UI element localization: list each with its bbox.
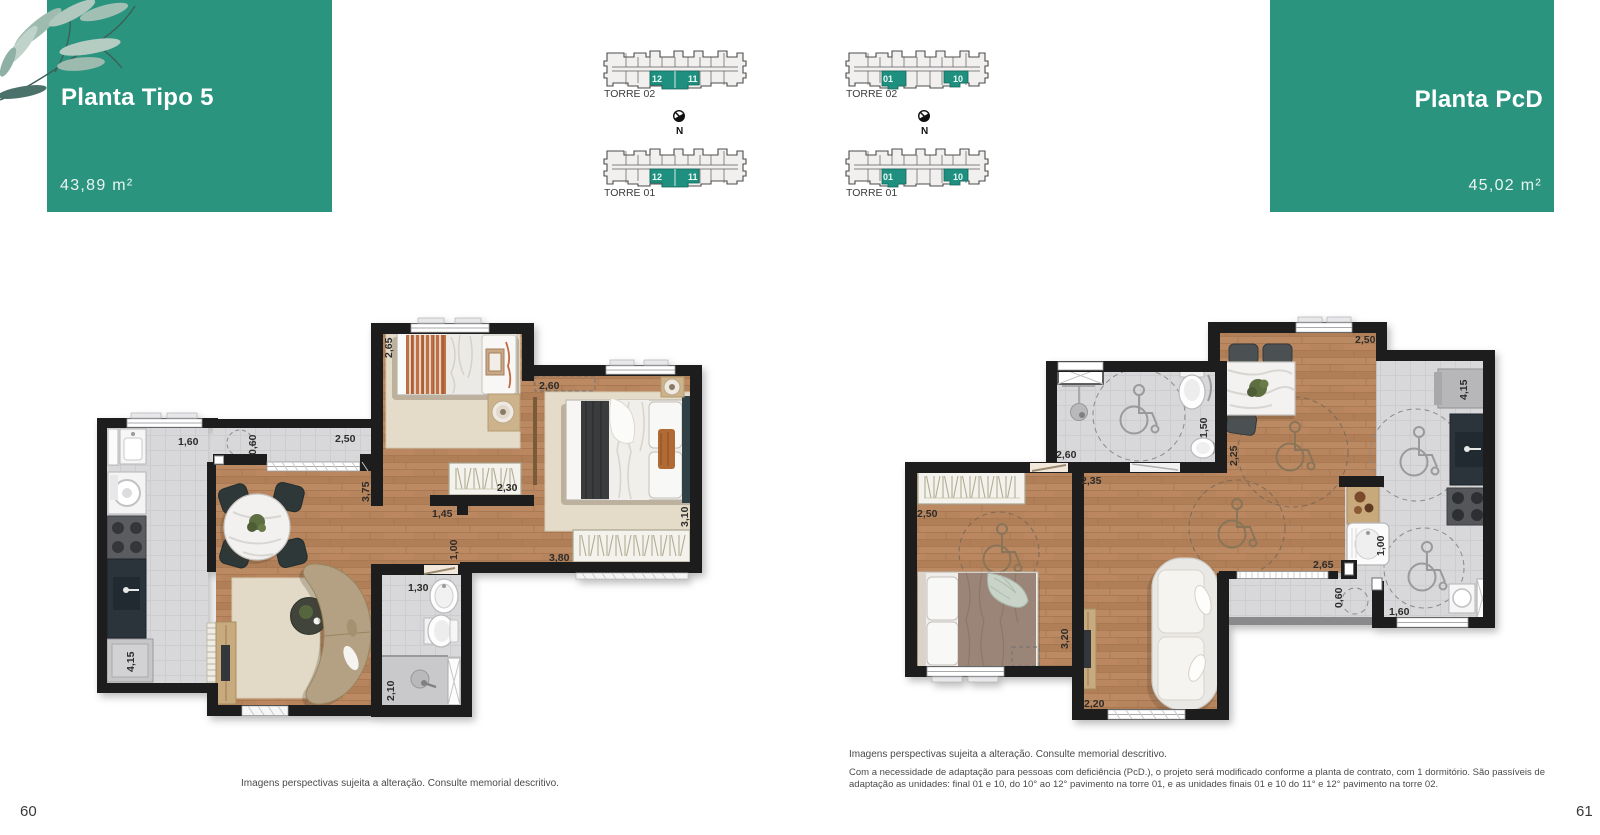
- svg-text:TORRE 01: TORRE 01: [846, 187, 897, 199]
- svg-text:2,50: 2,50: [335, 433, 356, 445]
- svg-text:2,65: 2,65: [383, 337, 395, 358]
- svg-text:2,65: 2,65: [1313, 559, 1334, 571]
- svg-text:4,15: 4,15: [1458, 379, 1470, 400]
- svg-text:0,60: 0,60: [247, 434, 259, 455]
- svg-text:TORRE 01: TORRE 01: [604, 187, 655, 199]
- svg-text:TORRE 02: TORRE 02: [846, 88, 897, 100]
- svg-text:2,20: 2,20: [1084, 698, 1105, 710]
- svg-text:2,60: 2,60: [539, 380, 560, 392]
- svg-text:2,25: 2,25: [1228, 445, 1240, 466]
- svg-text:1,45: 1,45: [432, 508, 453, 520]
- svg-text:3,80: 3,80: [549, 552, 570, 564]
- svg-text:2,35: 2,35: [1081, 475, 1102, 487]
- svg-text:3,10: 3,10: [679, 506, 691, 527]
- svg-text:3,75: 3,75: [360, 481, 372, 502]
- svg-text:N: N: [921, 126, 928, 137]
- svg-text:2,30: 2,30: [497, 482, 518, 494]
- svg-text:2,50: 2,50: [917, 508, 938, 520]
- svg-text:1,00: 1,00: [1375, 535, 1387, 556]
- svg-text:2,10: 2,10: [385, 680, 397, 701]
- svg-text:TORRE 02: TORRE 02: [604, 88, 655, 100]
- svg-text:1,00: 1,00: [448, 539, 460, 560]
- svg-text:N: N: [676, 126, 683, 137]
- svg-text:3,20: 3,20: [1059, 628, 1071, 649]
- svg-text:1,50: 1,50: [1198, 417, 1210, 438]
- svg-text:0,60: 0,60: [1333, 587, 1345, 608]
- svg-text:1,60: 1,60: [178, 436, 199, 448]
- svg-text:2,50: 2,50: [1355, 334, 1376, 346]
- svg-text:1,30: 1,30: [408, 582, 429, 594]
- svg-text:2,60: 2,60: [1056, 449, 1077, 461]
- svg-text:4,15: 4,15: [125, 651, 137, 672]
- svg-text:1,60: 1,60: [1389, 606, 1410, 618]
